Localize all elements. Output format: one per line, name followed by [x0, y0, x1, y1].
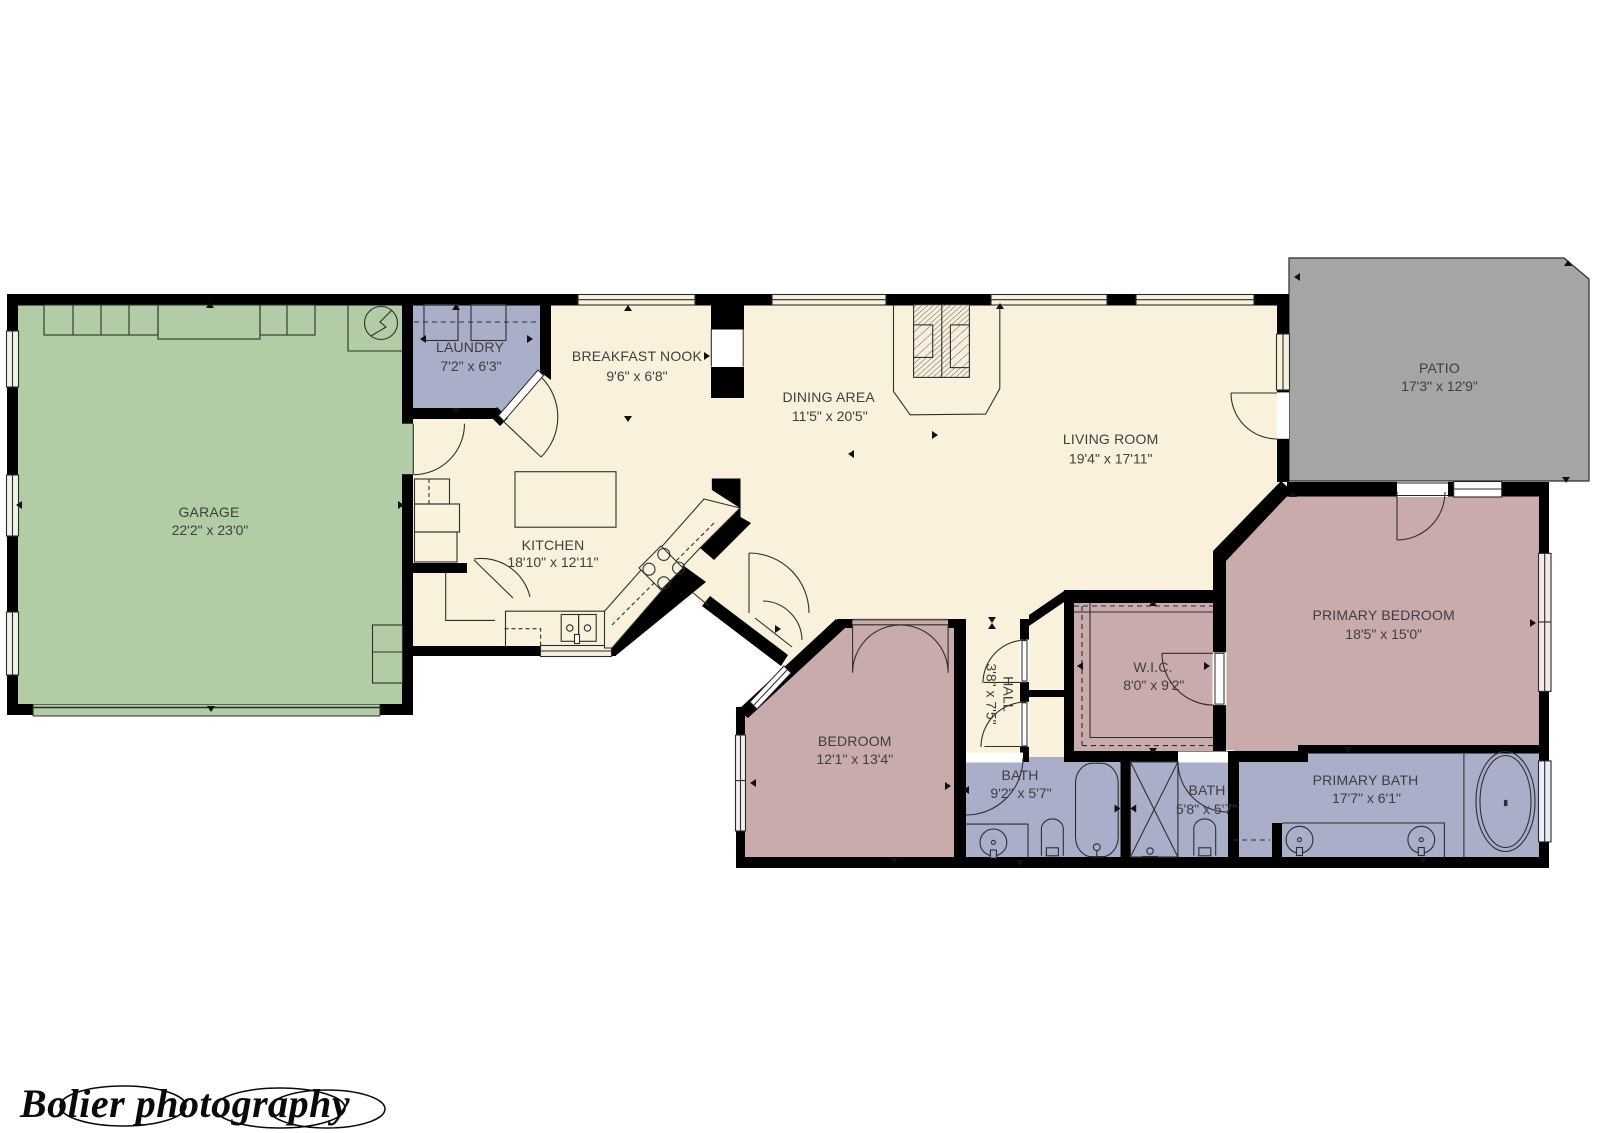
svg-text:PRIMARY BEDROOM: PRIMARY BEDROOM — [1312, 607, 1455, 623]
svg-text:PRIMARY BATH: PRIMARY BATH — [1313, 772, 1419, 788]
svg-text:W.I.C.: W.I.C. — [1133, 659, 1172, 675]
svg-text:PATIO: PATIO — [1419, 360, 1460, 376]
svg-text:12'1" x 13'4": 12'1" x 13'4" — [816, 751, 893, 767]
svg-text:8'0" x 9'2": 8'0" x 9'2" — [1123, 677, 1184, 693]
svg-text:BREAKFAST NOOK: BREAKFAST NOOK — [572, 348, 703, 364]
svg-text:18'5" x 15'0": 18'5" x 15'0" — [1345, 626, 1422, 642]
svg-text:9'2" x 5'7": 9'2" x 5'7" — [990, 785, 1051, 801]
svg-text:BATH: BATH — [1188, 782, 1225, 798]
svg-text:18'10" x 12'11": 18'10" x 12'11" — [507, 554, 598, 570]
svg-text:Bolier photography: Bolier photography — [19, 1081, 350, 1126]
svg-text:9'6" x 6'8": 9'6" x 6'8" — [606, 368, 667, 384]
svg-text:7'2" x 6'3": 7'2" x 6'3" — [440, 358, 501, 374]
svg-text:17'3" x 12'9": 17'3" x 12'9" — [1401, 378, 1478, 394]
svg-text:17'7" x 6'1": 17'7" x 6'1" — [1332, 790, 1401, 806]
svg-text:22'2" x 23'0": 22'2" x 23'0" — [172, 522, 249, 538]
svg-text:LAUNDRY: LAUNDRY — [436, 339, 505, 355]
svg-text:KITCHEN: KITCHEN — [522, 537, 585, 553]
svg-text:19'4" x 17'11": 19'4" x 17'11" — [1069, 451, 1153, 467]
svg-text:BEDROOM: BEDROOM — [818, 733, 892, 749]
svg-text:11'5" x 20'5": 11'5" x 20'5" — [792, 408, 868, 424]
svg-text:BATH: BATH — [1001, 767, 1038, 783]
svg-text:5'8" x 5'7": 5'8" x 5'7" — [1176, 801, 1237, 817]
svg-text:DINING AREA: DINING AREA — [782, 389, 875, 405]
svg-text:LIVING ROOM: LIVING ROOM — [1063, 431, 1159, 447]
svg-text:GARAGE: GARAGE — [178, 504, 239, 520]
svg-text:HALL: HALL — [1001, 676, 1017, 712]
svg-text:3'8" x 7'5": 3'8" x 7'5" — [984, 663, 1000, 724]
